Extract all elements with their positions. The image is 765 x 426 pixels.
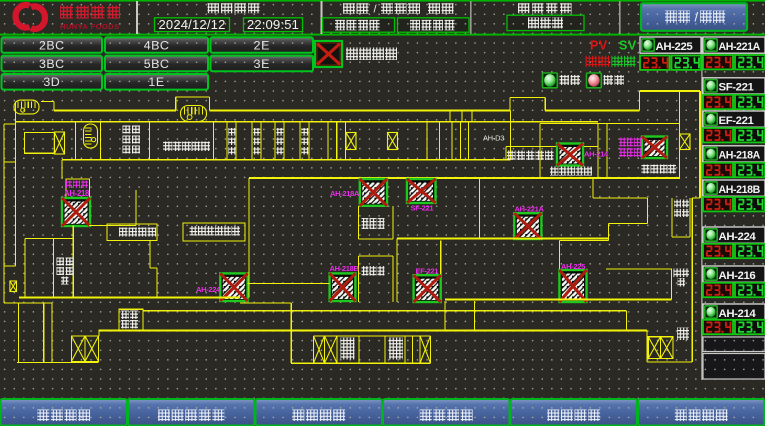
svg-text:AH-221A: AH-221A xyxy=(515,205,545,214)
svg-text:AH-218: AH-218 xyxy=(64,189,90,198)
svg-text:SV: SV xyxy=(619,39,637,53)
svg-text:EF-221: EF-221 xyxy=(416,267,439,276)
svg-text:AH-D3: AH-D3 xyxy=(483,134,504,143)
svg-text:22:09:51: 22:09:51 xyxy=(247,17,299,32)
svg-text:AH-214: AH-214 xyxy=(719,308,757,320)
svg-text:1E: 1E xyxy=(148,75,164,89)
svg-text:SF-221: SF-221 xyxy=(411,204,434,213)
svg-text:AH-225: AH-225 xyxy=(561,262,585,271)
svg-text:4BC: 4BC xyxy=(144,38,170,52)
svg-text:EF-221: EF-221 xyxy=(719,115,755,127)
svg-text:PV: PV xyxy=(590,39,608,53)
svg-text:AH-224: AH-224 xyxy=(196,285,221,294)
svg-text:AH-218A: AH-218A xyxy=(719,150,761,162)
svg-text:AH-224: AH-224 xyxy=(719,231,757,243)
svg-text:AH-225: AH-225 xyxy=(656,41,694,53)
svg-text:HUNYA FOODS: HUNYA FOODS xyxy=(60,22,120,31)
svg-text:2024/12/12: 2024/12/12 xyxy=(158,17,225,32)
svg-text:2BC: 2BC xyxy=(39,38,65,52)
svg-text:AH-218B: AH-218B xyxy=(330,264,360,273)
svg-text:AH-221A: AH-221A xyxy=(719,41,761,53)
svg-text:SF-221: SF-221 xyxy=(719,82,755,94)
svg-text:AH-216: AH-216 xyxy=(719,270,756,282)
svg-text:AH-218A: AH-218A xyxy=(330,189,360,198)
svg-text:AH-214: AH-214 xyxy=(584,150,609,159)
svg-text:3BC: 3BC xyxy=(39,57,65,71)
svg-text:2E: 2E xyxy=(254,38,270,52)
svg-text:AH-218B: AH-218B xyxy=(719,184,761,196)
svg-text:3E: 3E xyxy=(254,57,270,71)
svg-text:/: / xyxy=(695,10,699,25)
svg-text:5BC: 5BC xyxy=(144,57,170,71)
svg-text:3D: 3D xyxy=(43,75,60,89)
